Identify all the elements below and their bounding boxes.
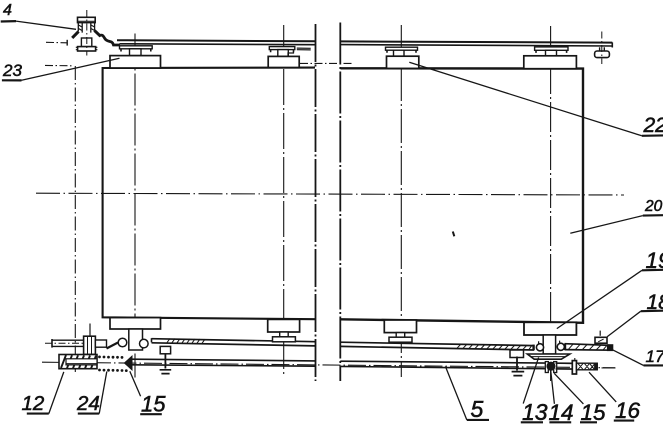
- svg-text:16: 16: [615, 398, 641, 423]
- svg-text:13: 13: [522, 399, 548, 424]
- svg-text:23: 23: [2, 61, 22, 80]
- svg-text:15: 15: [141, 392, 166, 417]
- svg-text:12: 12: [22, 392, 45, 415]
- svg-text:20: 20: [644, 198, 663, 215]
- svg-text:22: 22: [643, 114, 663, 137]
- svg-text:15: 15: [581, 400, 607, 424]
- svg-text:18: 18: [647, 291, 663, 314]
- svg-text:17: 17: [646, 347, 663, 366]
- svg-text:5: 5: [471, 396, 484, 422]
- svg-text:14: 14: [549, 400, 574, 424]
- svg-text:24: 24: [76, 392, 100, 415]
- svg-text:4: 4: [3, 2, 12, 19]
- svg-text:19: 19: [646, 248, 663, 273]
